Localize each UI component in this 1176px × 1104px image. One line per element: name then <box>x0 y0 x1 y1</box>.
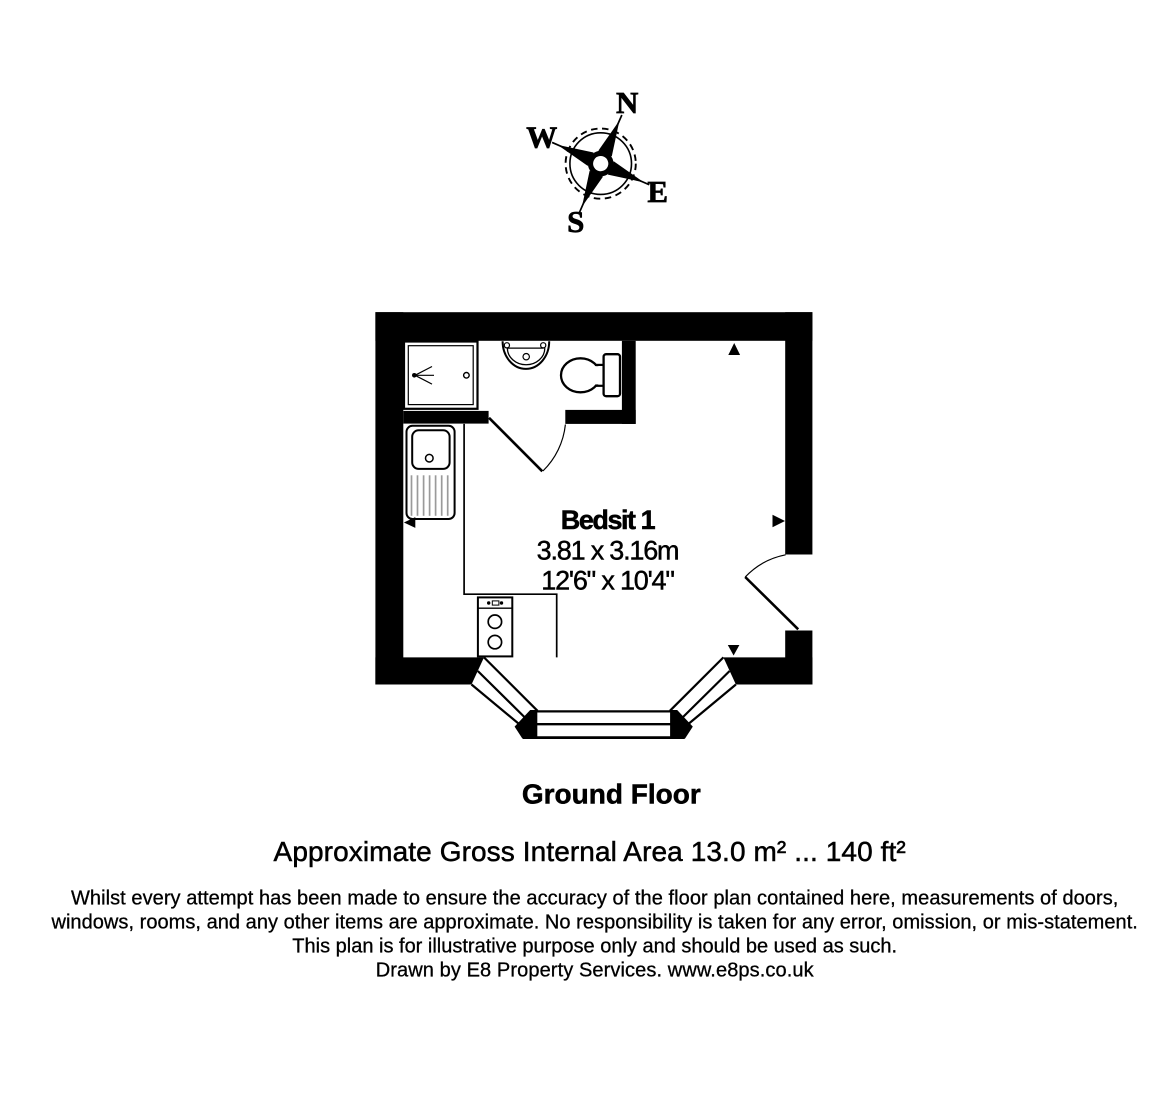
svg-text:3.81 x 3.16m: 3.81 x 3.16m <box>537 536 679 566</box>
svg-text:Approximate Gross Internal Are: Approximate Gross Internal Area 13.0 m² … <box>274 836 906 867</box>
svg-text:12'6" x 10'4": 12'6" x 10'4" <box>541 566 674 596</box>
svg-text:windows, rooms, and any other: windows, rooms, and any other items are … <box>50 911 1137 933</box>
svg-text:S: S <box>567 204 584 239</box>
svg-text:Whilst every attempt has been: Whilst every attempt has been made to en… <box>71 888 1118 910</box>
svg-text:N: N <box>616 85 638 120</box>
svg-text:This plan is for illustrative: This plan is for illustrative purpose on… <box>292 935 897 957</box>
svg-text:Bedsit 1: Bedsit 1 <box>561 505 656 535</box>
svg-text:W: W <box>526 120 557 155</box>
svg-text:Drawn by E8 Property Services.: Drawn by E8 Property Services. www.e8ps.… <box>376 959 815 981</box>
svg-text:Ground Floor: Ground Floor <box>522 779 701 810</box>
svg-text:E: E <box>647 174 668 209</box>
